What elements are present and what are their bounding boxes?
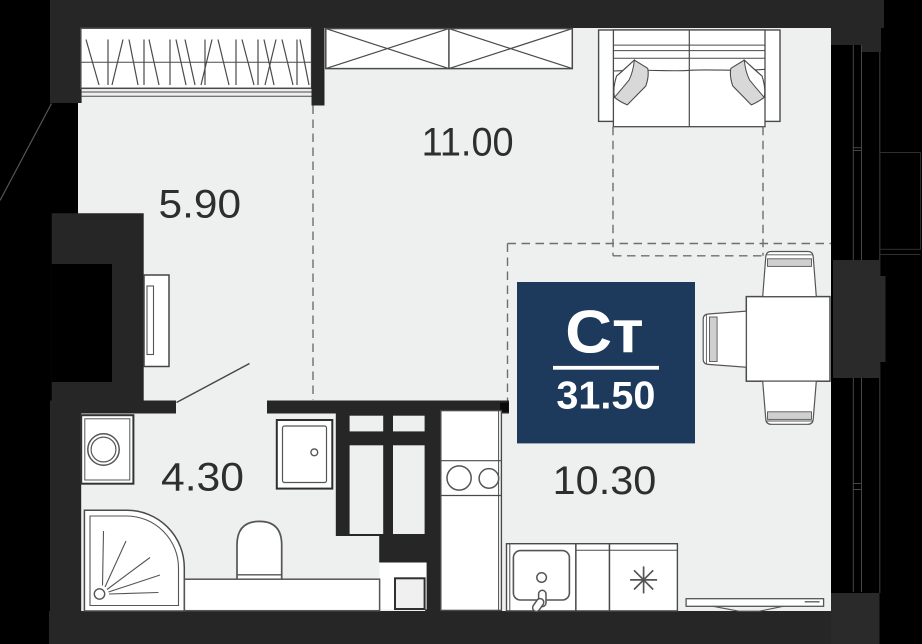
svg-text:4.30: 4.30	[161, 456, 244, 500]
svg-text:31.50: 31.50	[556, 374, 655, 417]
svg-text:5.90: 5.90	[159, 182, 242, 226]
svg-text:11.00: 11.00	[422, 121, 514, 165]
svg-text:Ст: Ст	[565, 299, 644, 366]
svg-text:10.30: 10.30	[553, 459, 657, 503]
